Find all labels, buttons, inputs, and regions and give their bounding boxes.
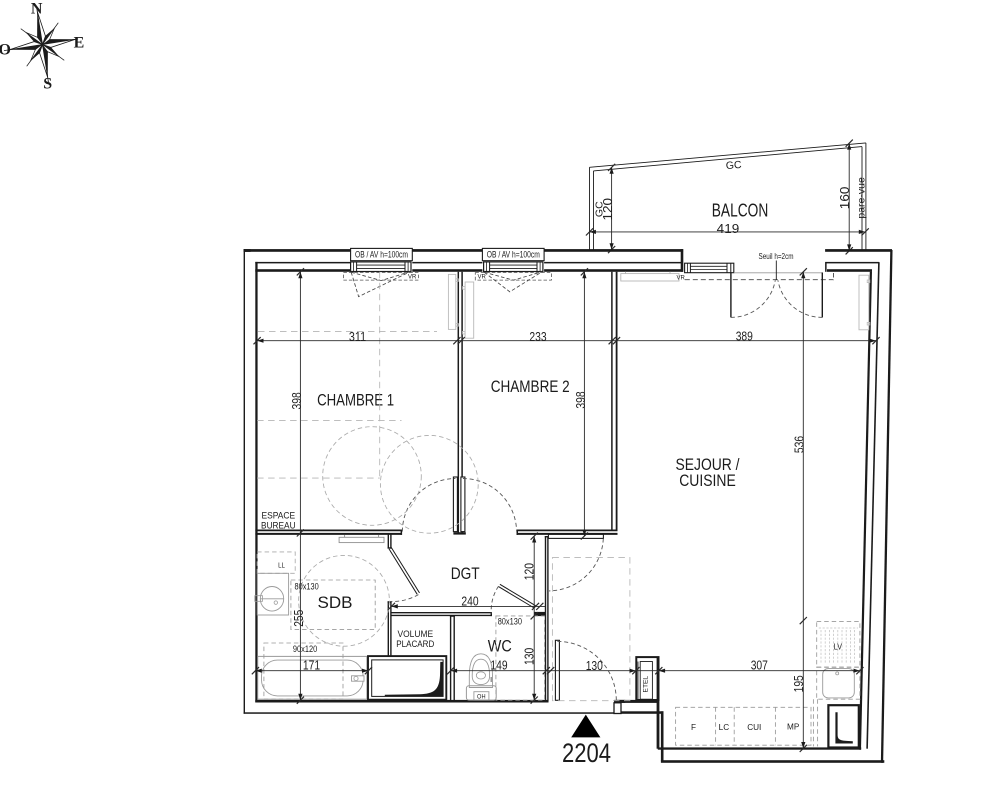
svg-text:MP: MP	[787, 722, 800, 731]
svg-text:VR: VR	[408, 275, 417, 281]
svg-text:DGT: DGT	[451, 564, 480, 583]
svg-text:ETEL: ETEL	[643, 676, 650, 693]
svg-text:255: 255	[292, 610, 306, 627]
svg-text:398: 398	[574, 391, 588, 408]
svg-text:VR: VR	[478, 275, 487, 281]
svg-text:398: 398	[290, 392, 304, 409]
svg-text:120: 120	[601, 198, 615, 221]
svg-text:419: 419	[717, 222, 740, 236]
svg-text:171: 171	[303, 659, 320, 673]
svg-text:240: 240	[461, 595, 478, 609]
svg-text:F: F	[691, 723, 696, 732]
svg-text:2204: 2204	[562, 738, 611, 768]
svg-text:CHAMBRE 2: CHAMBRE 2	[491, 377, 570, 396]
svg-text:LL: LL	[278, 560, 285, 569]
svg-text:130: 130	[522, 648, 536, 665]
svg-text:80x130: 80x130	[295, 581, 319, 591]
svg-text:CHAMBRE 1: CHAMBRE 1	[317, 390, 394, 409]
svg-text:GC: GC	[725, 159, 742, 172]
svg-text:WC: WC	[488, 636, 512, 655]
svg-text:Seuil h=2cm: Seuil h=2cm	[759, 251, 794, 261]
svg-text:E: E	[74, 35, 85, 52]
svg-text:160: 160	[838, 187, 852, 210]
svg-text:OB / AV h=100cm: OB / AV h=100cm	[487, 250, 540, 260]
svg-text:VR: VR	[677, 275, 686, 281]
svg-text:BALCON: BALCON	[712, 201, 769, 221]
svg-text:CUI: CUI	[747, 723, 761, 732]
svg-text:130: 130	[586, 659, 603, 673]
svg-text:LC: LC	[719, 723, 730, 732]
svg-text:pare-vue: pare-vue	[856, 177, 868, 219]
svg-text:O: O	[0, 42, 11, 59]
svg-text:N: N	[31, 1, 43, 18]
svg-text:SDB: SDB	[318, 593, 353, 612]
svg-text:OB / AV h=100cm: OB / AV h=100cm	[355, 250, 408, 260]
svg-text:149: 149	[490, 659, 507, 673]
svg-text:S: S	[43, 76, 52, 93]
svg-text:OH: OH	[477, 694, 486, 701]
svg-text:PLACARD: PLACARD	[396, 639, 434, 650]
svg-text:90x120: 90x120	[293, 644, 317, 654]
svg-text:233: 233	[529, 330, 546, 344]
svg-text:80x130: 80x130	[498, 616, 522, 626]
svg-text:536: 536	[792, 436, 806, 453]
svg-text:CUISINE: CUISINE	[679, 471, 736, 490]
svg-text:195: 195	[792, 675, 806, 692]
svg-text:120: 120	[523, 563, 537, 580]
svg-text:LV: LV	[834, 642, 842, 652]
svg-text:BUREAU: BUREAU	[261, 521, 296, 532]
svg-text:311: 311	[349, 330, 366, 344]
svg-text:389: 389	[736, 330, 753, 344]
svg-text:307: 307	[751, 658, 768, 672]
